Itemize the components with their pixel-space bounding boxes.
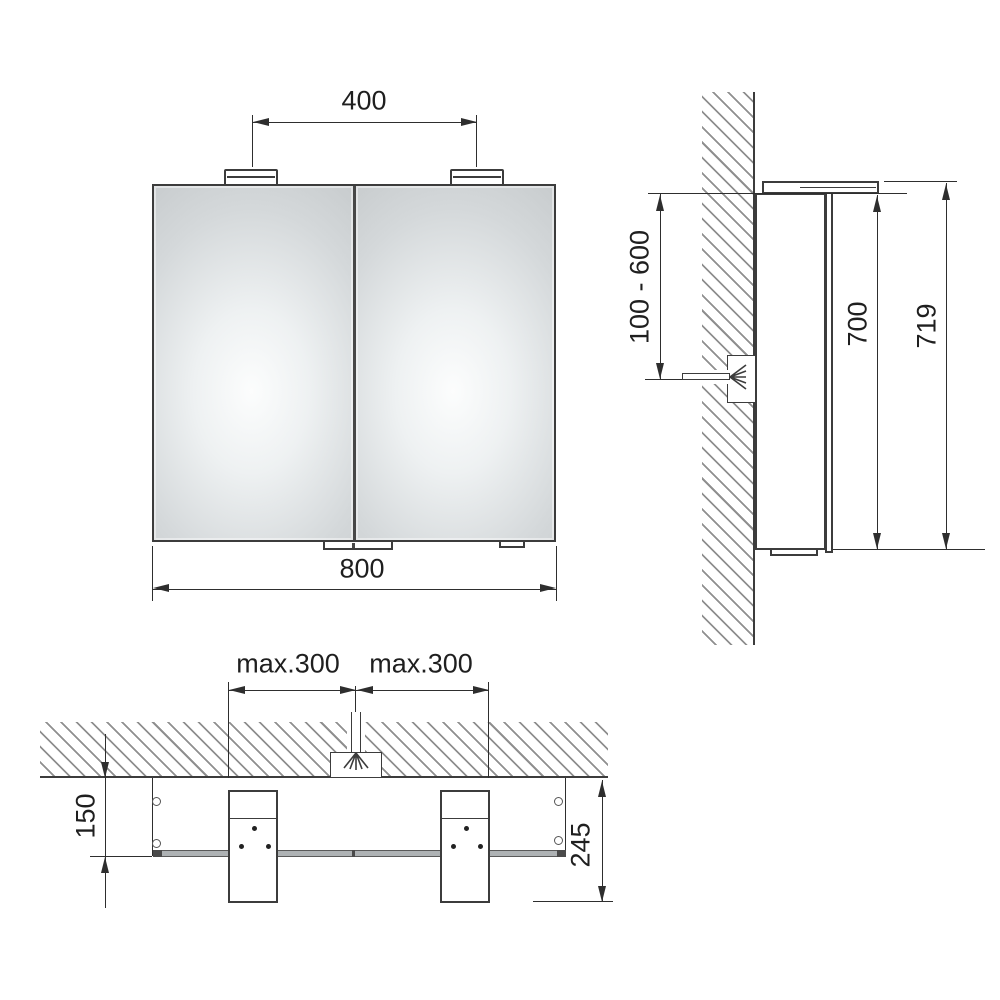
dim-max300-left-label: max.300: [236, 651, 340, 678]
dim-outlet-arrow-bottom: [656, 363, 664, 379]
dim-245-ext-line: [533, 901, 613, 902]
dim-800-arrow-left: [153, 584, 169, 592]
dim-outlet-line: [660, 194, 661, 380]
dim-outlet-label: 100 - 600: [627, 230, 654, 344]
hinge-pin-right-bottom: [554, 836, 563, 845]
plan-lamp-right-screw-br: [478, 844, 483, 849]
dim-400-arrow-right: [461, 118, 477, 126]
dim-700-arrow-bottom: [873, 533, 881, 549]
front-lamp-right-lens-line: [453, 176, 501, 178]
dim-max300-right-label: max.300: [369, 651, 473, 678]
plan-lamp-left-housing-line: [230, 818, 276, 819]
mirror-door-left: [154, 186, 353, 540]
plan-mirror-front-bar: [153, 850, 566, 857]
side-bottom-ref-line: [833, 549, 985, 550]
dim-245-arrow-bottom: [598, 886, 606, 902]
dim-800-ext-left: [152, 546, 153, 601]
side-cable: [682, 373, 730, 380]
dim-max300-ext-right: [488, 682, 489, 778]
dim-800-ext-right: [556, 546, 557, 601]
plan-cable: [351, 712, 361, 752]
dim-outlet-arrow-top: [656, 195, 664, 211]
dim-700-label: 700: [845, 301, 872, 346]
dim-150-line: [105, 734, 106, 908]
dim-245-arrow-top: [598, 781, 606, 797]
plan-lamp-left-screw-br: [266, 844, 271, 849]
dim-719-label: 719: [914, 303, 941, 348]
technical-drawing-mirror-cabinet: 400 800 100 - 600: [0, 0, 1000, 1000]
front-bottom-handle-gap-tick: [352, 543, 355, 548]
plan-lamp-right: [440, 790, 490, 903]
hinge-pin-left-top: [152, 797, 161, 806]
dim-400-label: 400: [341, 88, 386, 115]
dim-700-line: [877, 195, 878, 549]
side-lamp-top-ref-line: [884, 181, 957, 182]
dim-719-arrow-top: [942, 184, 950, 200]
plan-wall-section: [40, 722, 608, 778]
plan-lamp-right-screw-top: [464, 826, 469, 831]
dim-700-arrow-top: [873, 196, 881, 212]
side-bottom-handle: [770, 550, 818, 556]
dim-719-arrow-bottom: [942, 533, 950, 549]
dim-max300-ext-left: [228, 682, 229, 778]
side-mirror-door: [825, 190, 833, 553]
plan-lamp-left-screw-bl: [239, 844, 244, 849]
front-cabinet-body: [152, 184, 556, 542]
side-cabinet-body: [755, 193, 826, 550]
dim-245-line: [602, 780, 603, 901]
dim-800-arrow-right: [540, 584, 556, 592]
front-bottom-handle-center: [323, 542, 393, 550]
side-lamp-lens-line: [800, 187, 876, 188]
plan-mirror-bar-endcap-right: [557, 850, 566, 857]
side-cable-fan-icon: [730, 364, 748, 391]
dim-800-label: 800: [339, 556, 384, 583]
dim-max300-left-arrow-outer: [229, 686, 245, 694]
plan-cable-fan-icon: [343, 753, 369, 771]
dim-400-arrow-left: [253, 118, 269, 126]
dim-719-line: [946, 183, 947, 549]
hinge-pin-left-bottom: [152, 839, 161, 848]
front-bottom-switch-right: [499, 542, 525, 548]
dim-400-line: [252, 122, 477, 123]
dim-150-ext-line: [90, 856, 152, 857]
dim-150-label: 150: [73, 793, 100, 838]
hinge-pin-right-top: [554, 797, 563, 806]
mirror-doors: [154, 186, 554, 540]
dim-800-line: [152, 589, 557, 590]
side-outlet-ref-line: [645, 379, 685, 380]
plan-lamp-right-housing-line: [442, 818, 488, 819]
mirror-door-right: [356, 186, 555, 540]
dim-245-label: 245: [568, 822, 595, 867]
plan-lamp-left-screw-top: [252, 826, 257, 831]
dim-max300-left-arrow-inner: [340, 686, 356, 694]
plan-mirror-bar-endcap-left: [153, 850, 162, 857]
plan-lamp-left: [228, 790, 278, 903]
plan-lamp-right-screw-bl: [451, 844, 456, 849]
dim-max300-right-arrow-outer: [473, 686, 489, 694]
plan-mirror-bar-gap-tick: [352, 850, 355, 857]
front-lamp-left-lens-line: [227, 176, 275, 178]
dim-max300-right-arrow-inner: [357, 686, 373, 694]
side-top-ref-line: [648, 193, 907, 194]
